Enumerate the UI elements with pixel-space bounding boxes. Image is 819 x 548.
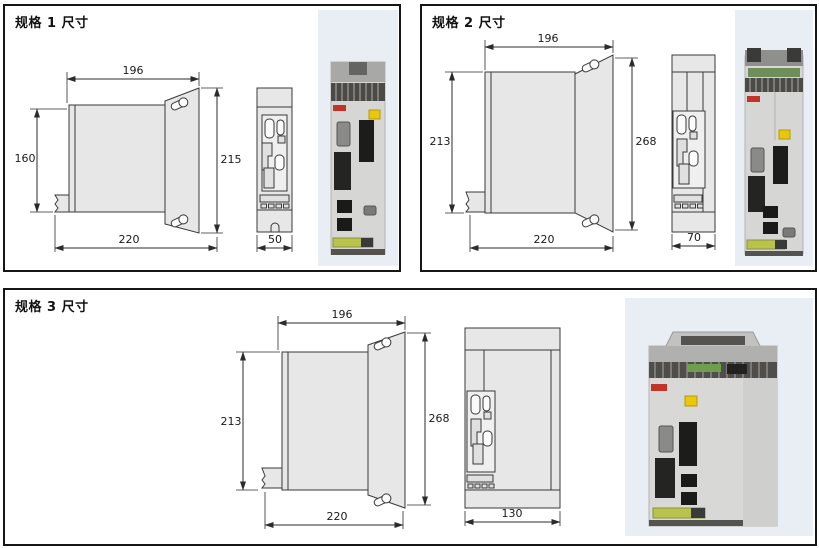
brand-label <box>651 384 667 391</box>
spec3-side-view <box>262 332 405 508</box>
spec1-product-photo <box>318 10 398 266</box>
dim-left-height: 213 <box>430 135 451 148</box>
spec2-product-photo <box>735 10 813 266</box>
warning-sticker <box>685 396 697 406</box>
dim-bottom-width: 220 <box>119 233 140 246</box>
spec1-front-view <box>257 88 292 232</box>
dim-bottom-width: 220 <box>534 233 555 246</box>
spec1-side-view <box>55 88 199 233</box>
spec2-title: 规格 2 尺寸 <box>432 12 506 31</box>
spec3-product-photo <box>625 298 813 536</box>
spec3-title: 规格 3 尺寸 <box>15 296 89 315</box>
dim-right-height: 215 <box>221 153 242 166</box>
brand-label <box>333 105 346 111</box>
dim-left-height: 213 <box>221 415 242 428</box>
dim-top-width: 196 <box>538 32 559 45</box>
spec1-drive-illustration <box>318 10 398 266</box>
dim-bottom-width: 220 <box>327 510 348 523</box>
page: { "panels": [ { "title": "规格 1 尺寸", "dim… <box>0 0 819 548</box>
spec3-drive-illustration <box>625 298 813 536</box>
dim-right-height: 268 <box>636 135 657 148</box>
spec1-panel: 规格 1 尺寸 <box>3 4 401 272</box>
dim-right-height: 268 <box>429 412 450 425</box>
spec1-title: 规格 1 尺寸 <box>15 12 89 31</box>
dim-left-height: 160 <box>15 152 36 165</box>
spec3-front-view <box>465 328 560 508</box>
dim-top-width: 196 <box>123 64 144 77</box>
dim-top-width: 196 <box>332 308 353 321</box>
brand-label <box>747 96 760 102</box>
dim-front-width: 130 <box>502 507 523 520</box>
spec2-front-view <box>672 55 715 232</box>
dim-front-width: 70 <box>687 231 701 244</box>
warning-sticker <box>779 130 790 139</box>
spec3-panel: 规格 3 尺寸 <box>3 288 817 546</box>
warning-sticker <box>369 110 380 119</box>
spec2-side-view <box>466 55 613 232</box>
dim-front-width: 50 <box>268 233 282 246</box>
spec2-panel: 规格 2 尺寸 <box>420 4 817 272</box>
spec2-drive-illustration <box>735 10 813 266</box>
